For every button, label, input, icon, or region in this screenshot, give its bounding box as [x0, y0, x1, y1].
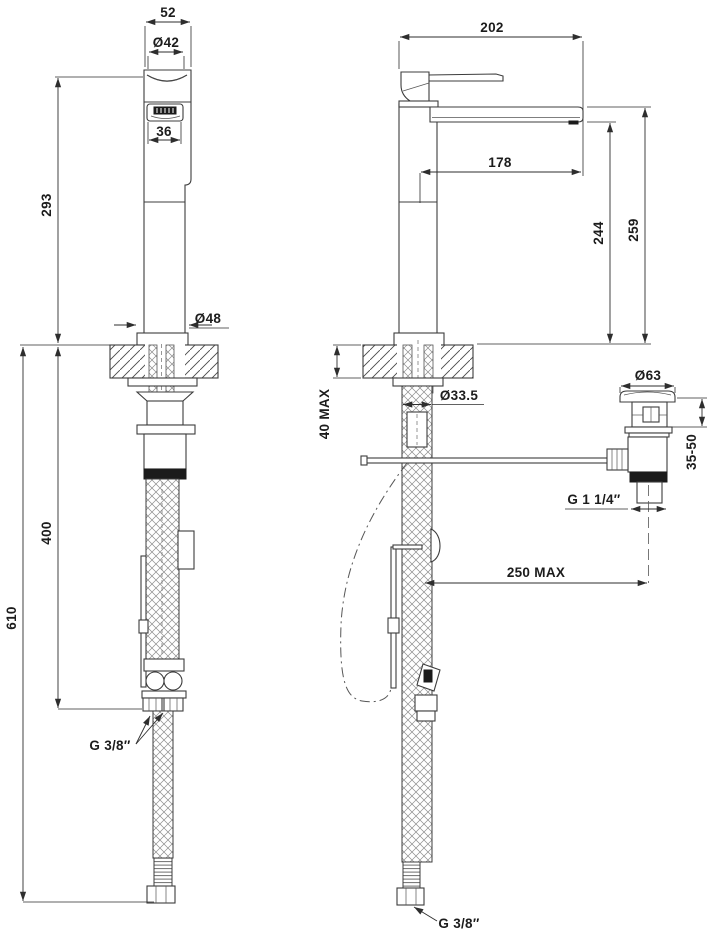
dim-side-waste-offset-max: 250 MAX [507, 565, 565, 580]
hex-nut [143, 698, 162, 711]
check-valve [146, 672, 164, 690]
hose-bundle-side [402, 386, 432, 862]
locknut-side [393, 378, 443, 386]
dim-front-total-below-deck: 610 [4, 606, 19, 629]
dim-side-shank-dia: Ø33.5 [440, 388, 478, 403]
dim-front-top-width: 52 [160, 5, 176, 20]
spout [430, 107, 583, 122]
front-view: 52 Ø42 36 Ø48 293 [4, 5, 229, 903]
label-side-supply-thread: G 3/8″ [438, 916, 480, 931]
supply-hose-front [153, 711, 173, 858]
dim-front-handle-dia: Ø42 [153, 35, 179, 50]
label-front-supply-thread: G 3/8″ [89, 738, 131, 753]
dim-side-deck-thickness-max: 40 MAX [317, 389, 332, 440]
waste-thread-band [630, 472, 667, 482]
hose-collar [154, 858, 172, 886]
dim-front-supply-length: 400 [39, 521, 54, 544]
faucet-body-side [399, 104, 437, 345]
rod-connector [607, 449, 628, 470]
label-side-waste-thread: G 1 1/4″ [567, 492, 620, 507]
dim-front-window-width: 36 [156, 124, 172, 139]
hose-swing-path [341, 463, 407, 702]
handle-lever [428, 74, 503, 81]
waste-flange [620, 391, 675, 402]
handle-body [401, 72, 429, 101]
technical-drawing-page: 52 Ø42 36 Ø48 293 [0, 0, 714, 940]
hose-bundle-front [146, 479, 179, 659]
dim-side-waste-deck-range: 35-50 [684, 434, 699, 470]
faucet-technical-drawing: 52 Ø42 36 Ø48 293 [0, 0, 714, 940]
hose-collar [403, 862, 420, 888]
faucet-base-side [394, 333, 444, 345]
dim-side-spout-height: 244 [591, 221, 606, 245]
side-view: 202 178 244 259 4 [317, 20, 651, 931]
aerator [569, 121, 578, 124]
hose-nut [397, 888, 424, 905]
dim-front-base-dia: Ø48 [195, 311, 222, 326]
waste-tailpiece [637, 482, 662, 503]
locknut-front [128, 378, 197, 386]
check-valve [164, 672, 182, 690]
dim-side-outlet-height: 259 [626, 218, 641, 241]
hex-nut [164, 698, 183, 711]
gasket-band [144, 469, 186, 479]
popup-rod [363, 458, 608, 463]
waste-drain-detail: Ø63 35-50 G 1 1/4″ [565, 368, 707, 583]
side-block [178, 531, 194, 569]
dim-front-height-above-deck: 293 [39, 193, 54, 217]
hose-nut [147, 886, 175, 903]
dim-side-waste-flange-dia: Ø63 [635, 368, 662, 383]
faucet-base-front [137, 333, 188, 345]
dim-side-spout-reach: 178 [488, 155, 512, 170]
dim-side-total-depth: 202 [480, 20, 503, 35]
